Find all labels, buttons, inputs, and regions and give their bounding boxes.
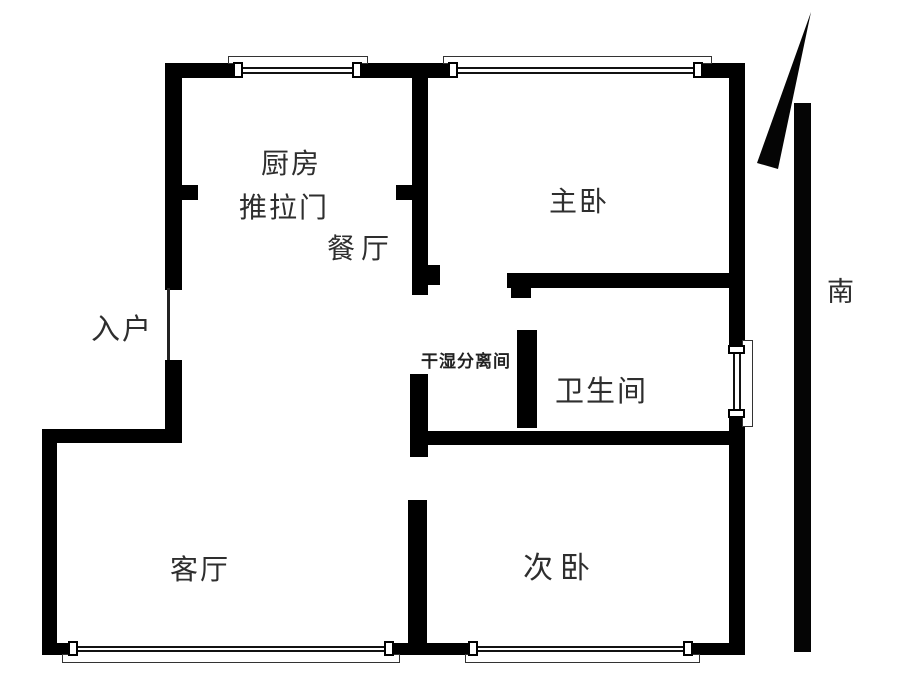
label-sliding-door: 推拉门 bbox=[239, 195, 329, 223]
floorplan: 厨房 推拉门 餐厅 主卧 入户 干湿分离间 卫生间 客厅 次卧 南 bbox=[0, 0, 900, 675]
window-living-glass bbox=[72, 643, 393, 655]
wall-master-bottom bbox=[507, 273, 745, 288]
wall-outer-left-lower bbox=[42, 429, 57, 655]
label-dry-wet-area: 干湿分离间 bbox=[421, 353, 511, 370]
window-secondbed-cap-left bbox=[468, 641, 478, 656]
label-dining: 餐厅 bbox=[327, 236, 395, 264]
window-master-cap-right bbox=[693, 62, 703, 78]
wall-kitchen-foot bbox=[428, 265, 440, 285]
wall-master-stub bbox=[511, 288, 531, 298]
wall-sliding-door-stub-right bbox=[396, 185, 412, 200]
wall-kitchen-right bbox=[412, 63, 428, 295]
wall-outer-left-upper bbox=[165, 63, 182, 290]
entrance-door-line bbox=[167, 288, 170, 362]
window-master-glass bbox=[452, 63, 703, 78]
window-secondbed-glass bbox=[472, 643, 693, 655]
label-master-bedroom: 主卧 bbox=[549, 189, 609, 217]
wall-bathroom-left bbox=[517, 330, 537, 428]
wall-bathroom-bottom bbox=[410, 431, 730, 445]
label-entrance: 入户 bbox=[91, 316, 153, 345]
wall-entry-jog bbox=[42, 429, 182, 443]
window-secondbed-frame bbox=[465, 654, 700, 663]
window-kitchen-glass bbox=[237, 63, 362, 78]
window-living-cap-left bbox=[68, 641, 78, 656]
label-kitchen: 厨房 bbox=[261, 151, 321, 179]
window-master-cap-left bbox=[448, 62, 458, 78]
window-kitchen-cap-right bbox=[352, 62, 362, 78]
label-second-bedroom: 次卧 bbox=[523, 554, 597, 584]
wall-bedroom-divider bbox=[408, 500, 427, 655]
window-secondbed-cap-right bbox=[683, 641, 693, 656]
wall-sliding-door-stub-left bbox=[182, 185, 198, 200]
label-living-room: 客厅 bbox=[170, 557, 230, 585]
compass-south-label: 南 bbox=[827, 279, 856, 306]
label-bathroom: 卫生间 bbox=[555, 378, 648, 407]
window-bathroom-glass bbox=[729, 347, 745, 418]
window-kitchen-cap-left bbox=[233, 62, 243, 78]
window-bathroom-cap-bottom bbox=[728, 409, 745, 418]
window-living-frame bbox=[62, 654, 400, 663]
window-living-cap-right bbox=[384, 641, 394, 656]
window-bathroom-cap-top bbox=[728, 345, 745, 354]
